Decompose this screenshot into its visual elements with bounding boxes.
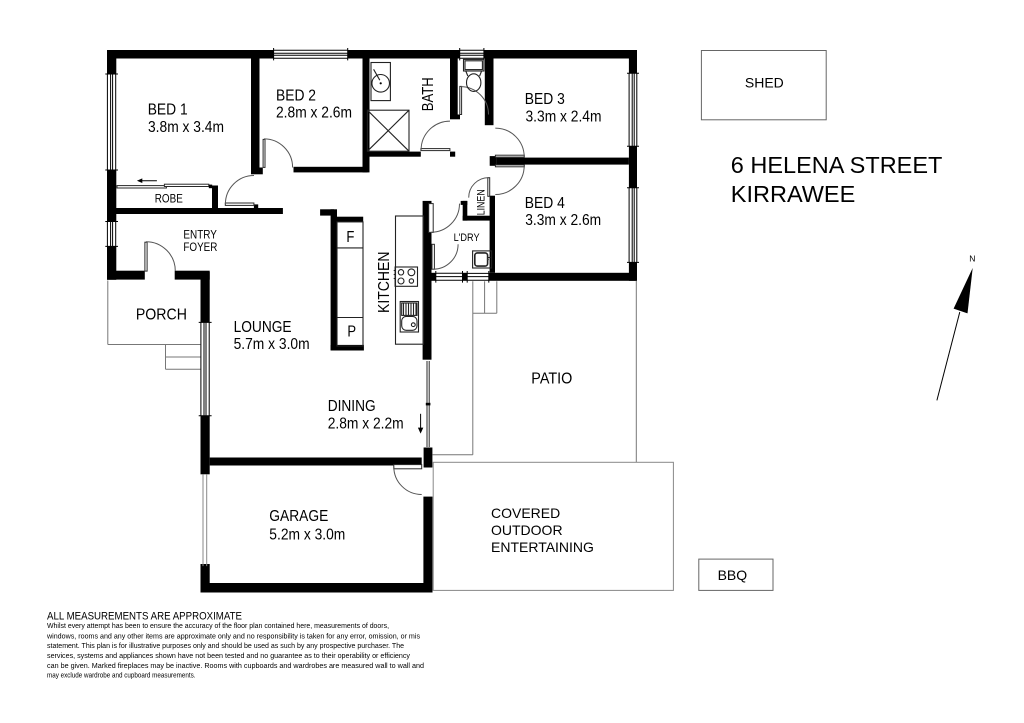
svg-text:2.8m x 2.2m: 2.8m x 2.2m: [328, 415, 404, 432]
svg-text:3.3m x 2.6m: 3.3m x 2.6m: [525, 212, 601, 229]
svg-text:3.3m x 2.4m: 3.3m x 2.4m: [526, 109, 602, 126]
svg-text:DINING: DINING: [328, 398, 376, 415]
svg-text:KIRRAWEE: KIRRAWEE: [731, 181, 855, 207]
svg-text:BBQ: BBQ: [718, 567, 748, 583]
svg-text:SHED: SHED: [745, 75, 784, 91]
svg-text:services, systems and applianc: services, systems and appliances shown h…: [47, 653, 411, 660]
svg-text:L'DRY: L'DRY: [454, 232, 481, 244]
svg-text:LINEN: LINEN: [475, 189, 487, 215]
svg-text:N: N: [969, 253, 975, 263]
svg-text:Whilst every attempt has been: Whilst every attempt has been to ensure …: [47, 623, 389, 630]
svg-text:BATH: BATH: [420, 77, 437, 111]
svg-text:BED 3: BED 3: [525, 91, 565, 108]
svg-text:2.8m x 2.6m: 2.8m x 2.6m: [276, 104, 352, 121]
svg-text:PORCH: PORCH: [136, 307, 187, 324]
svg-text:ENTERTAINING: ENTERTAINING: [491, 539, 594, 555]
svg-text:BED 1: BED 1: [148, 101, 188, 118]
svg-text:can be given. Marked fireplace: can be given. Marked fireplaces may be i…: [47, 663, 424, 670]
svg-text:ROBE: ROBE: [155, 191, 183, 205]
svg-text:statement. This plan is for il: statement. This plan is for illustrative…: [47, 643, 404, 650]
svg-text:6 HELENA STREET: 6 HELENA STREET: [731, 152, 943, 178]
svg-text:PATIO: PATIO: [531, 371, 572, 388]
svg-text:3.8m x 3.4m: 3.8m x 3.4m: [148, 119, 224, 136]
svg-text:windows, rooms and any other i: windows, rooms and any other items are a…: [46, 633, 421, 640]
svg-text:ALL MEASUREMENTS ARE APPROXIMA: ALL MEASUREMENTS ARE APPROXIMATE: [47, 611, 242, 623]
svg-text:KITCHEN: KITCHEN: [376, 252, 393, 314]
svg-text:GARAGE: GARAGE: [269, 508, 328, 525]
svg-text:F: F: [346, 229, 354, 246]
svg-text:5.2m x 3.0m: 5.2m x 3.0m: [269, 527, 345, 544]
svg-text:OUTDOOR: OUTDOOR: [491, 522, 563, 538]
svg-text:LOUNGE: LOUNGE: [234, 319, 292, 336]
svg-text:BED 4: BED 4: [525, 195, 565, 212]
svg-text:P: P: [347, 324, 356, 341]
svg-text:may exclude wardrobe and cupbo: may exclude wardrobe and cupboard measur…: [47, 672, 196, 679]
svg-text:5.7m x 3.0m: 5.7m x 3.0m: [234, 336, 310, 353]
svg-text:BED 2: BED 2: [276, 87, 316, 104]
svg-text:FOYER: FOYER: [183, 240, 217, 254]
svg-text:COVERED: COVERED: [491, 505, 560, 521]
